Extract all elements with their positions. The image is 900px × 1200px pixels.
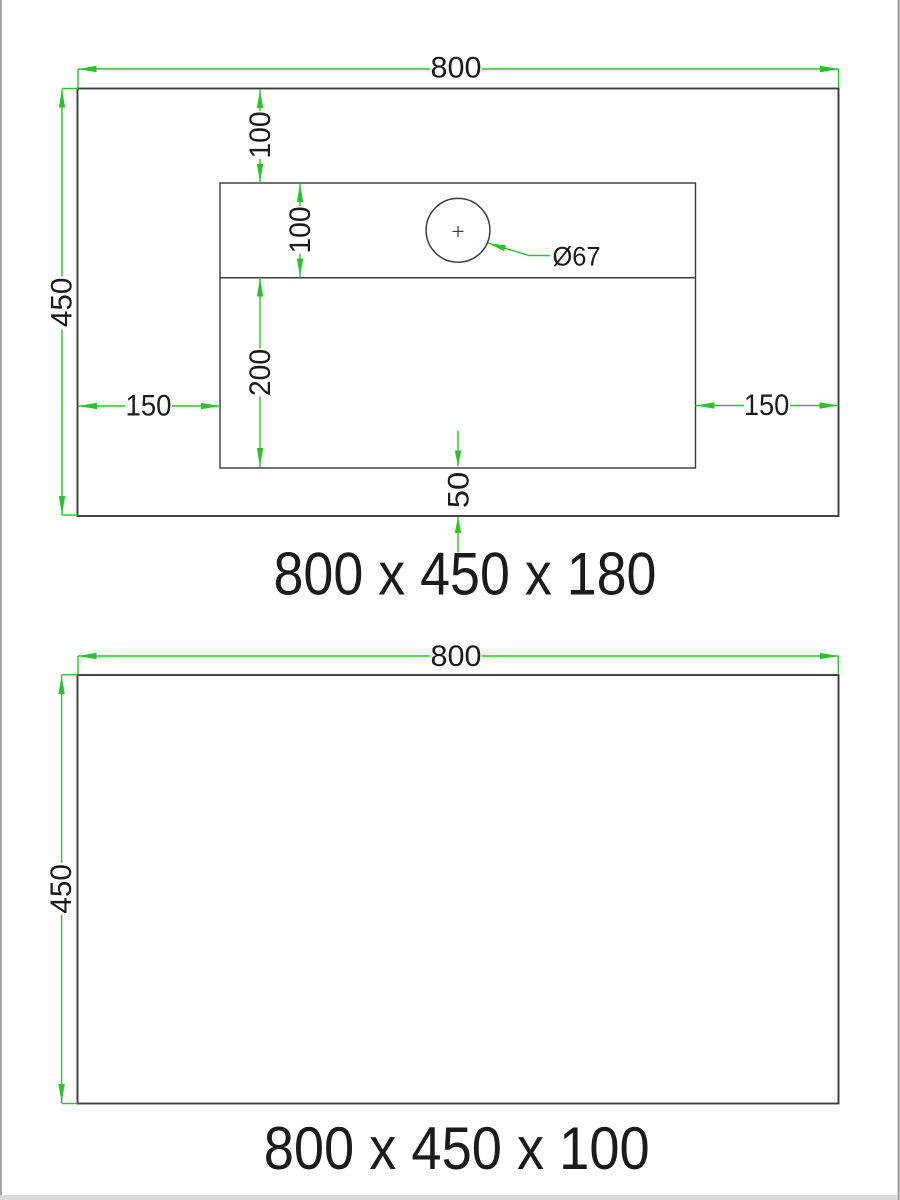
svg-text:200: 200 [244, 349, 277, 396]
svg-text:800: 800 [431, 52, 482, 85]
svg-text:100: 100 [244, 112, 277, 159]
svg-text:450: 450 [45, 864, 78, 914]
svg-text:150: 150 [126, 390, 172, 423]
svg-text:800: 800 [431, 640, 482, 673]
svg-text:150: 150 [744, 389, 790, 422]
svg-text:Ø67: Ø67 [553, 242, 601, 272]
svg-text:450: 450 [46, 278, 79, 328]
svg-text:50: 50 [443, 472, 476, 509]
svg-text:800 x 450 x 100: 800 x 450 x 100 [264, 1115, 650, 1182]
svg-text:800 x 450 x 180: 800 x 450 x 180 [274, 541, 657, 608]
svg-text:100: 100 [284, 207, 317, 254]
